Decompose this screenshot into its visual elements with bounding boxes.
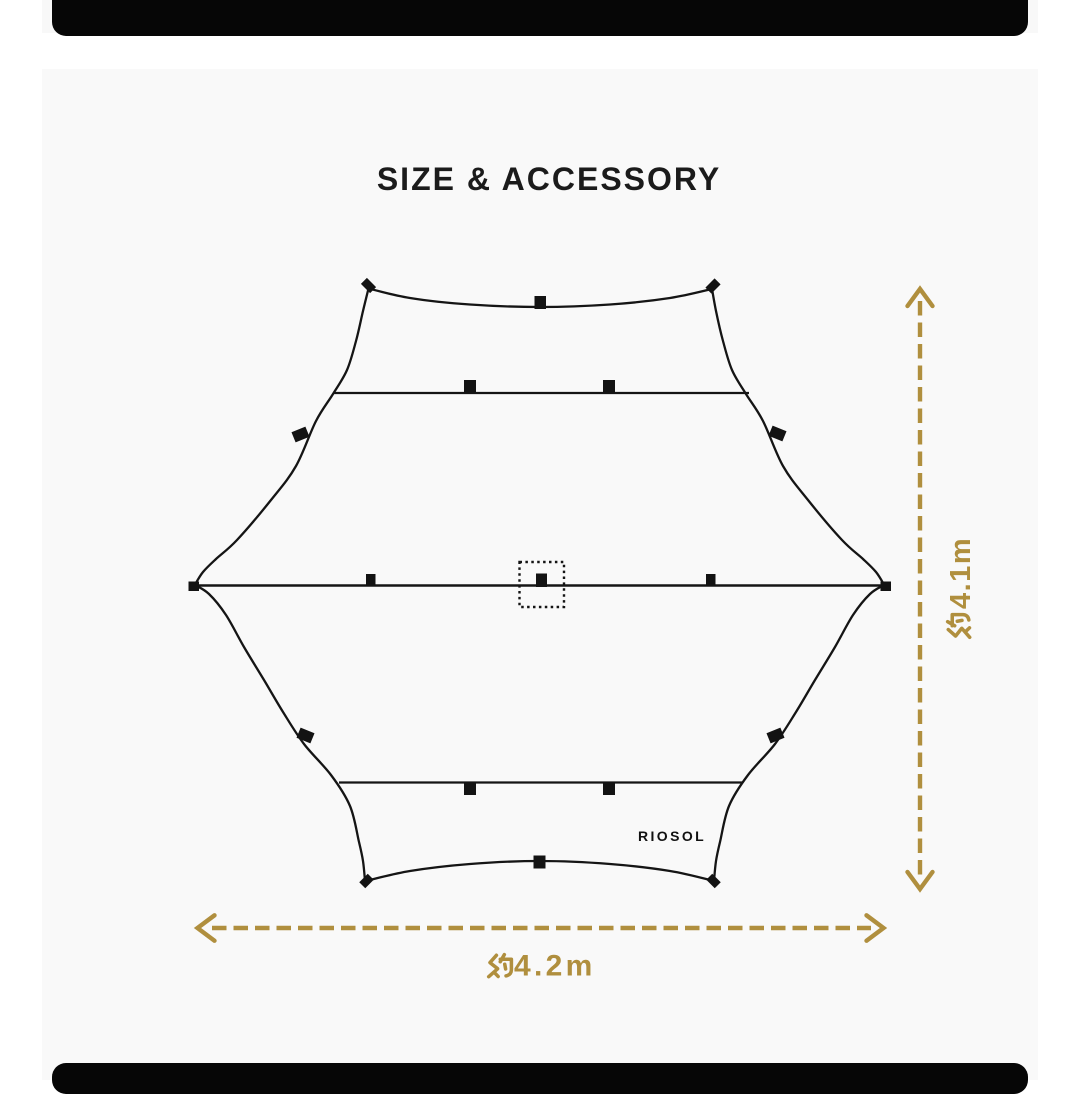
svg-text:RIOSOL: RIOSOL (638, 828, 706, 844)
svg-text:4.1m: 4.1m (945, 537, 977, 609)
svg-text:4.2m: 4.2m (514, 950, 596, 983)
svg-text:SIZE & ACCESSORY: SIZE & ACCESSORY (377, 161, 721, 197)
